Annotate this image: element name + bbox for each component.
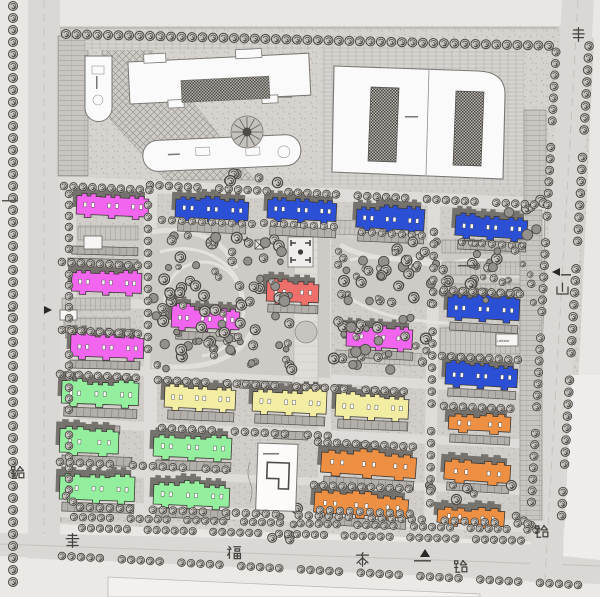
- svg-text:LaMaser: LaMaser: [497, 339, 510, 343]
